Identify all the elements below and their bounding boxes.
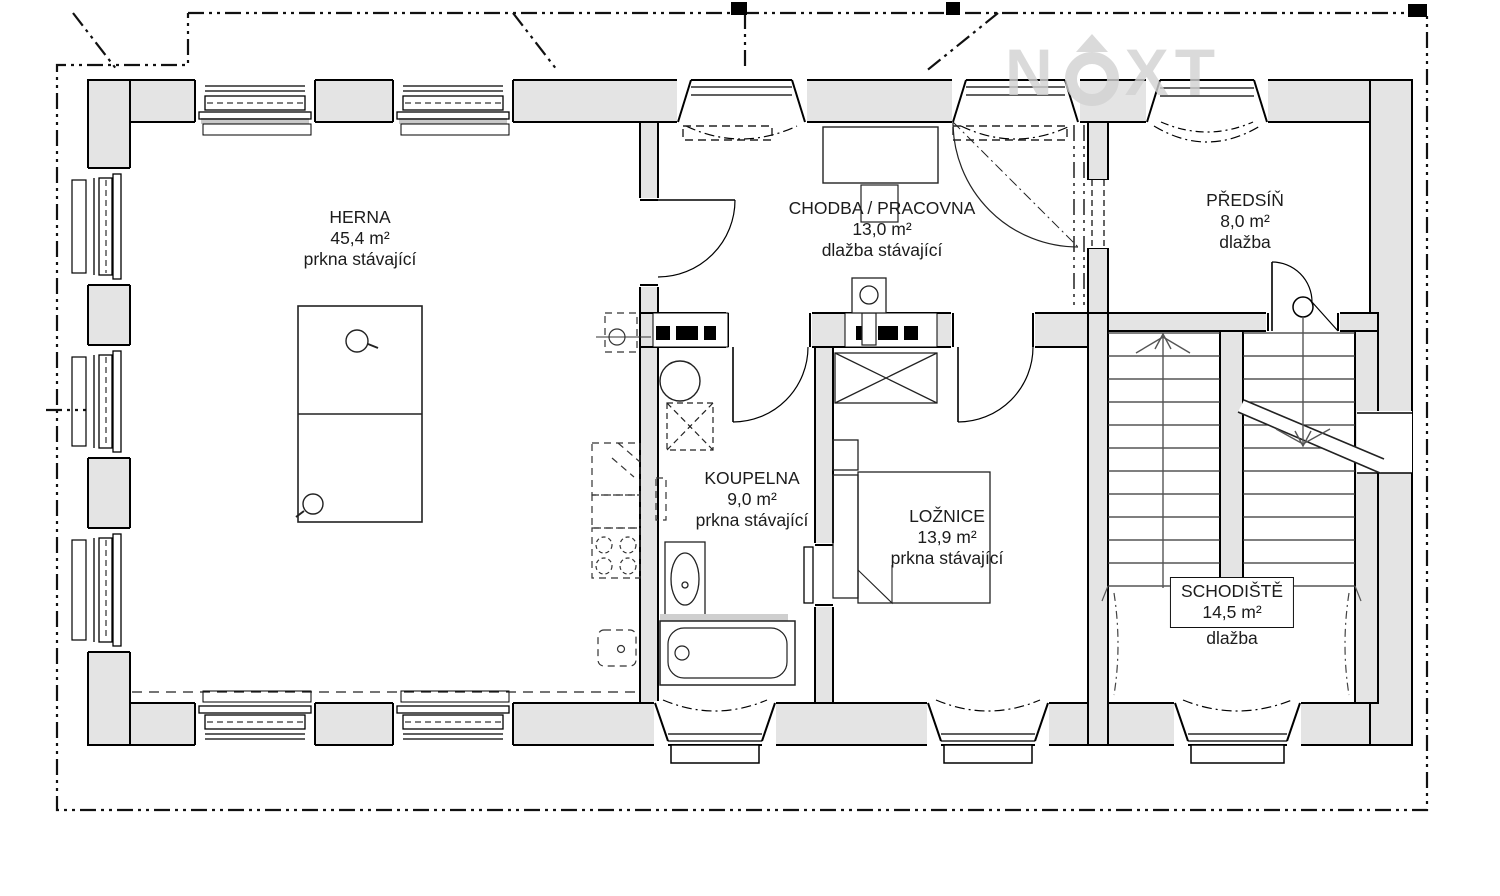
doormat-2 bbox=[953, 126, 1067, 140]
window-bottom-koupelna bbox=[654, 700, 776, 763]
room-floor: dlažba stávající bbox=[789, 240, 976, 261]
window-left-2 bbox=[72, 345, 132, 458]
room-area: 8,0 m² bbox=[1206, 211, 1284, 232]
door-koupelna-loznice bbox=[804, 543, 835, 607]
room-area: 13,9 m² bbox=[891, 527, 1004, 548]
floor-plan-drawing bbox=[0, 0, 1500, 896]
door-chodba-loznice bbox=[951, 311, 1035, 422]
room-area: 45,4 m² bbox=[304, 228, 417, 249]
door-exterior-chodba-2 bbox=[952, 78, 1080, 139]
nightstand bbox=[833, 440, 858, 470]
entry-swing-mark-left bbox=[1114, 593, 1118, 695]
room-label-predsin: PŘEDSÍŇ 8,0 m² dlažba bbox=[1206, 190, 1284, 253]
window-top-2 bbox=[393, 78, 513, 135]
door-entrance-predsin bbox=[1146, 78, 1268, 142]
room-name: LOŽNICE bbox=[891, 506, 1004, 527]
window-bottom-schodiste bbox=[1174, 700, 1301, 763]
room-floor: prkna stávající bbox=[891, 548, 1004, 569]
opening-chodba-predsin bbox=[1086, 180, 1110, 248]
schodiste-label-box: SCHODIŠTĚ 14,5 m² bbox=[1170, 577, 1294, 628]
floor-plan: HERNA 45,4 m² prkna stávající CHODBA / P… bbox=[0, 0, 1500, 896]
boundary-ticks bbox=[731, 2, 1427, 17]
room-floor: dlažba bbox=[1170, 628, 1294, 649]
window-left-3 bbox=[72, 528, 132, 652]
window-bottom-loznice bbox=[927, 700, 1049, 763]
window-top-1 bbox=[195, 78, 315, 135]
washbasin bbox=[665, 542, 705, 617]
room-area: 14,5 m² bbox=[1181, 602, 1283, 623]
table-tennis-table bbox=[296, 306, 422, 522]
pillow bbox=[833, 475, 858, 598]
stairs-left-flight bbox=[1108, 333, 1220, 588]
room-name: HERNA bbox=[304, 207, 417, 228]
door-herna-chodba bbox=[638, 198, 735, 287]
door-chodba-koupelna bbox=[726, 311, 812, 422]
stove bbox=[592, 528, 640, 578]
kitchen-sink bbox=[598, 630, 636, 666]
room-label-herna: HERNA 45,4 m² prkna stávající bbox=[304, 207, 417, 270]
room-label-schodiste: SCHODIŠTĚ 14,5 m² dlažba bbox=[1170, 577, 1294, 649]
stove-fixture bbox=[852, 278, 886, 313]
room-area: 9,0 m² bbox=[696, 489, 809, 510]
window-left-1 bbox=[72, 168, 132, 285]
wall-koupelna-loznice bbox=[815, 347, 833, 703]
window-bottom-1 bbox=[195, 691, 315, 747]
wall-loznice-schodiste bbox=[1088, 313, 1108, 745]
washing-machine bbox=[660, 361, 700, 401]
room-label-koupelna: KOUPELNA 9,0 m² prkna stávající bbox=[696, 468, 809, 531]
entry-swing-mark-right bbox=[1345, 593, 1349, 695]
wardrobe bbox=[835, 353, 937, 403]
wall-stair-spine bbox=[1220, 331, 1243, 580]
herna-furniture bbox=[132, 306, 666, 692]
room-label-loznice: LOŽNICE 13,9 m² prkna stávající bbox=[891, 506, 1004, 569]
flue bbox=[862, 313, 876, 345]
room-floor: dlažba bbox=[1206, 232, 1284, 253]
room-name: KOUPELNA bbox=[696, 468, 809, 489]
room-area: 13,0 m² bbox=[789, 219, 976, 240]
room-label-chodba-pracovna: CHODBA / PRACOVNA 13,0 m² dlažba stávají… bbox=[789, 198, 976, 261]
wall-stair-right bbox=[1355, 331, 1378, 703]
desk bbox=[823, 127, 938, 183]
room-floor: prkna stávající bbox=[696, 510, 809, 531]
room-name: CHODBA / PRACOVNA bbox=[789, 198, 976, 219]
wall-predsin-left-upper bbox=[1088, 122, 1108, 180]
door-exterior-chodba-1 bbox=[677, 78, 807, 139]
room-floor: prkna stávající bbox=[304, 249, 417, 270]
room-name: SCHODIŠTĚ bbox=[1181, 581, 1283, 602]
window-bottom-2 bbox=[393, 691, 513, 747]
shower bbox=[667, 403, 713, 450]
wall-predsin-left-lower bbox=[1088, 248, 1108, 313]
room-name: PŘEDSÍŇ bbox=[1206, 190, 1284, 211]
bathtub bbox=[660, 621, 795, 685]
